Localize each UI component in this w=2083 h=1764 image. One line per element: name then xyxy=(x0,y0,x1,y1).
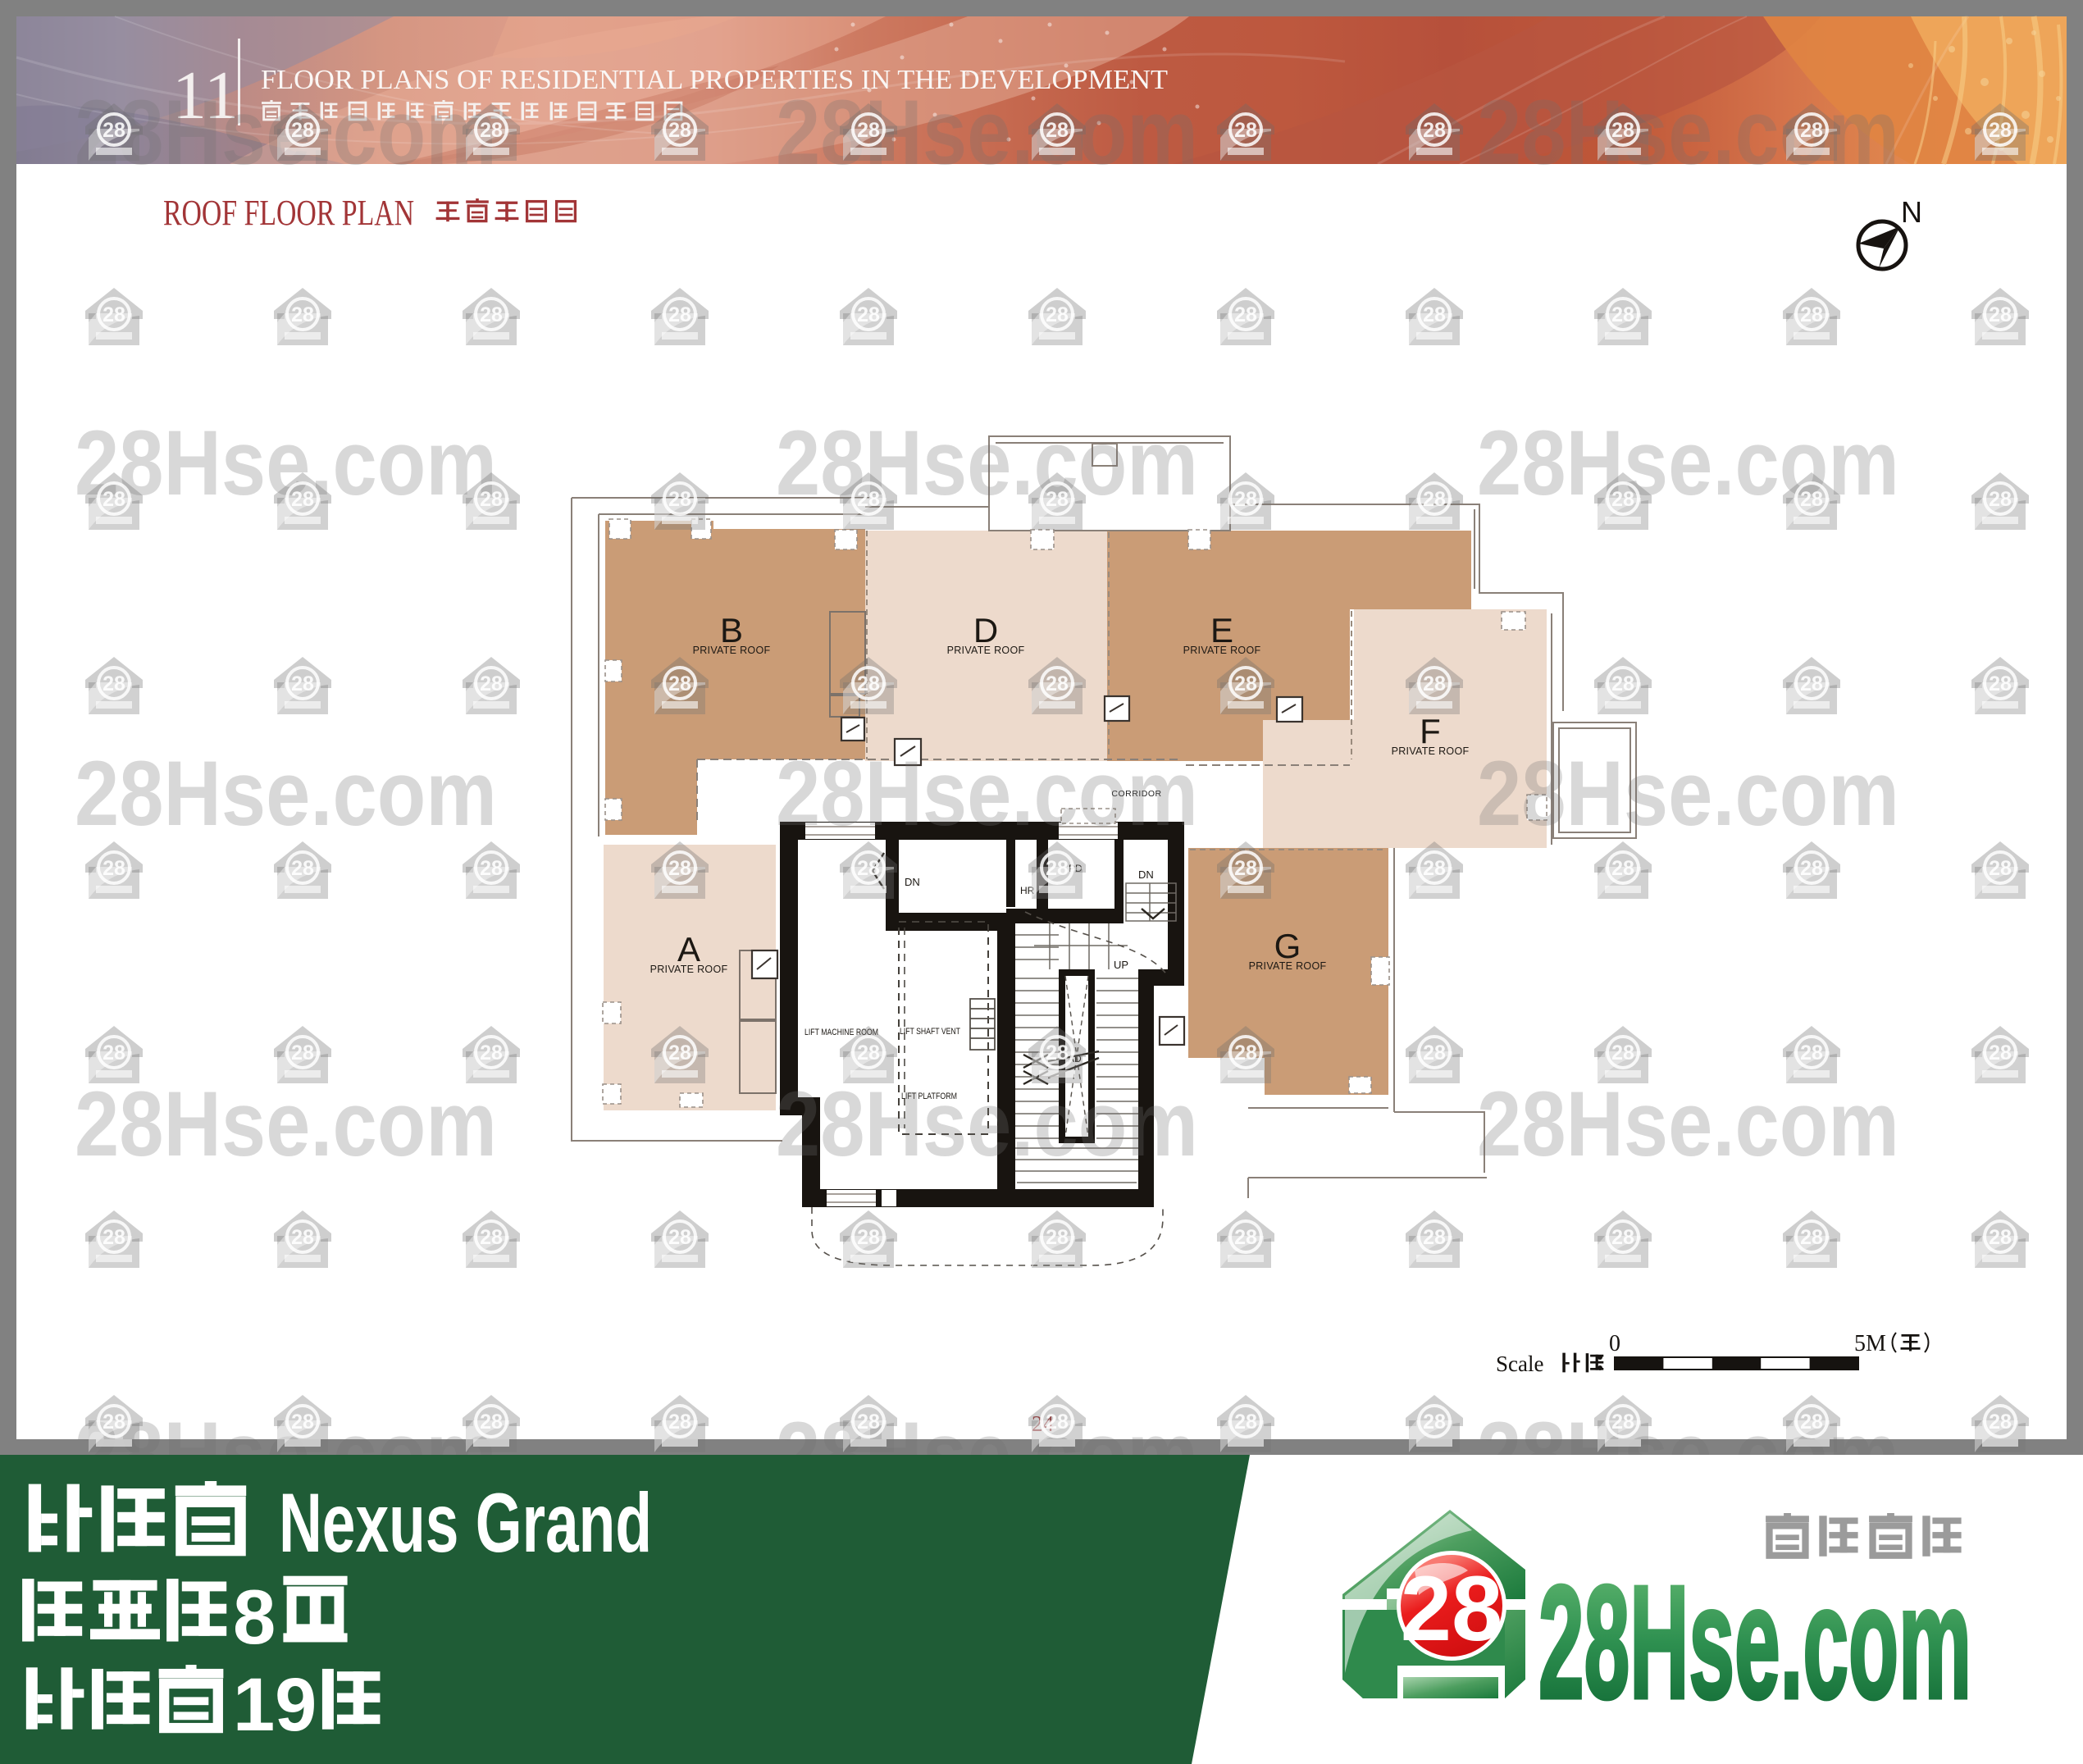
svg-text:Nexus Grand: Nexus Grand xyxy=(279,1476,652,1570)
svg-text:8: 8 xyxy=(233,1574,276,1660)
svg-text:19: 19 xyxy=(233,1663,317,1747)
svg-text:28: 28 xyxy=(1401,1557,1503,1660)
svg-text:28Hse.com: 28Hse.com xyxy=(1538,1552,1971,1732)
